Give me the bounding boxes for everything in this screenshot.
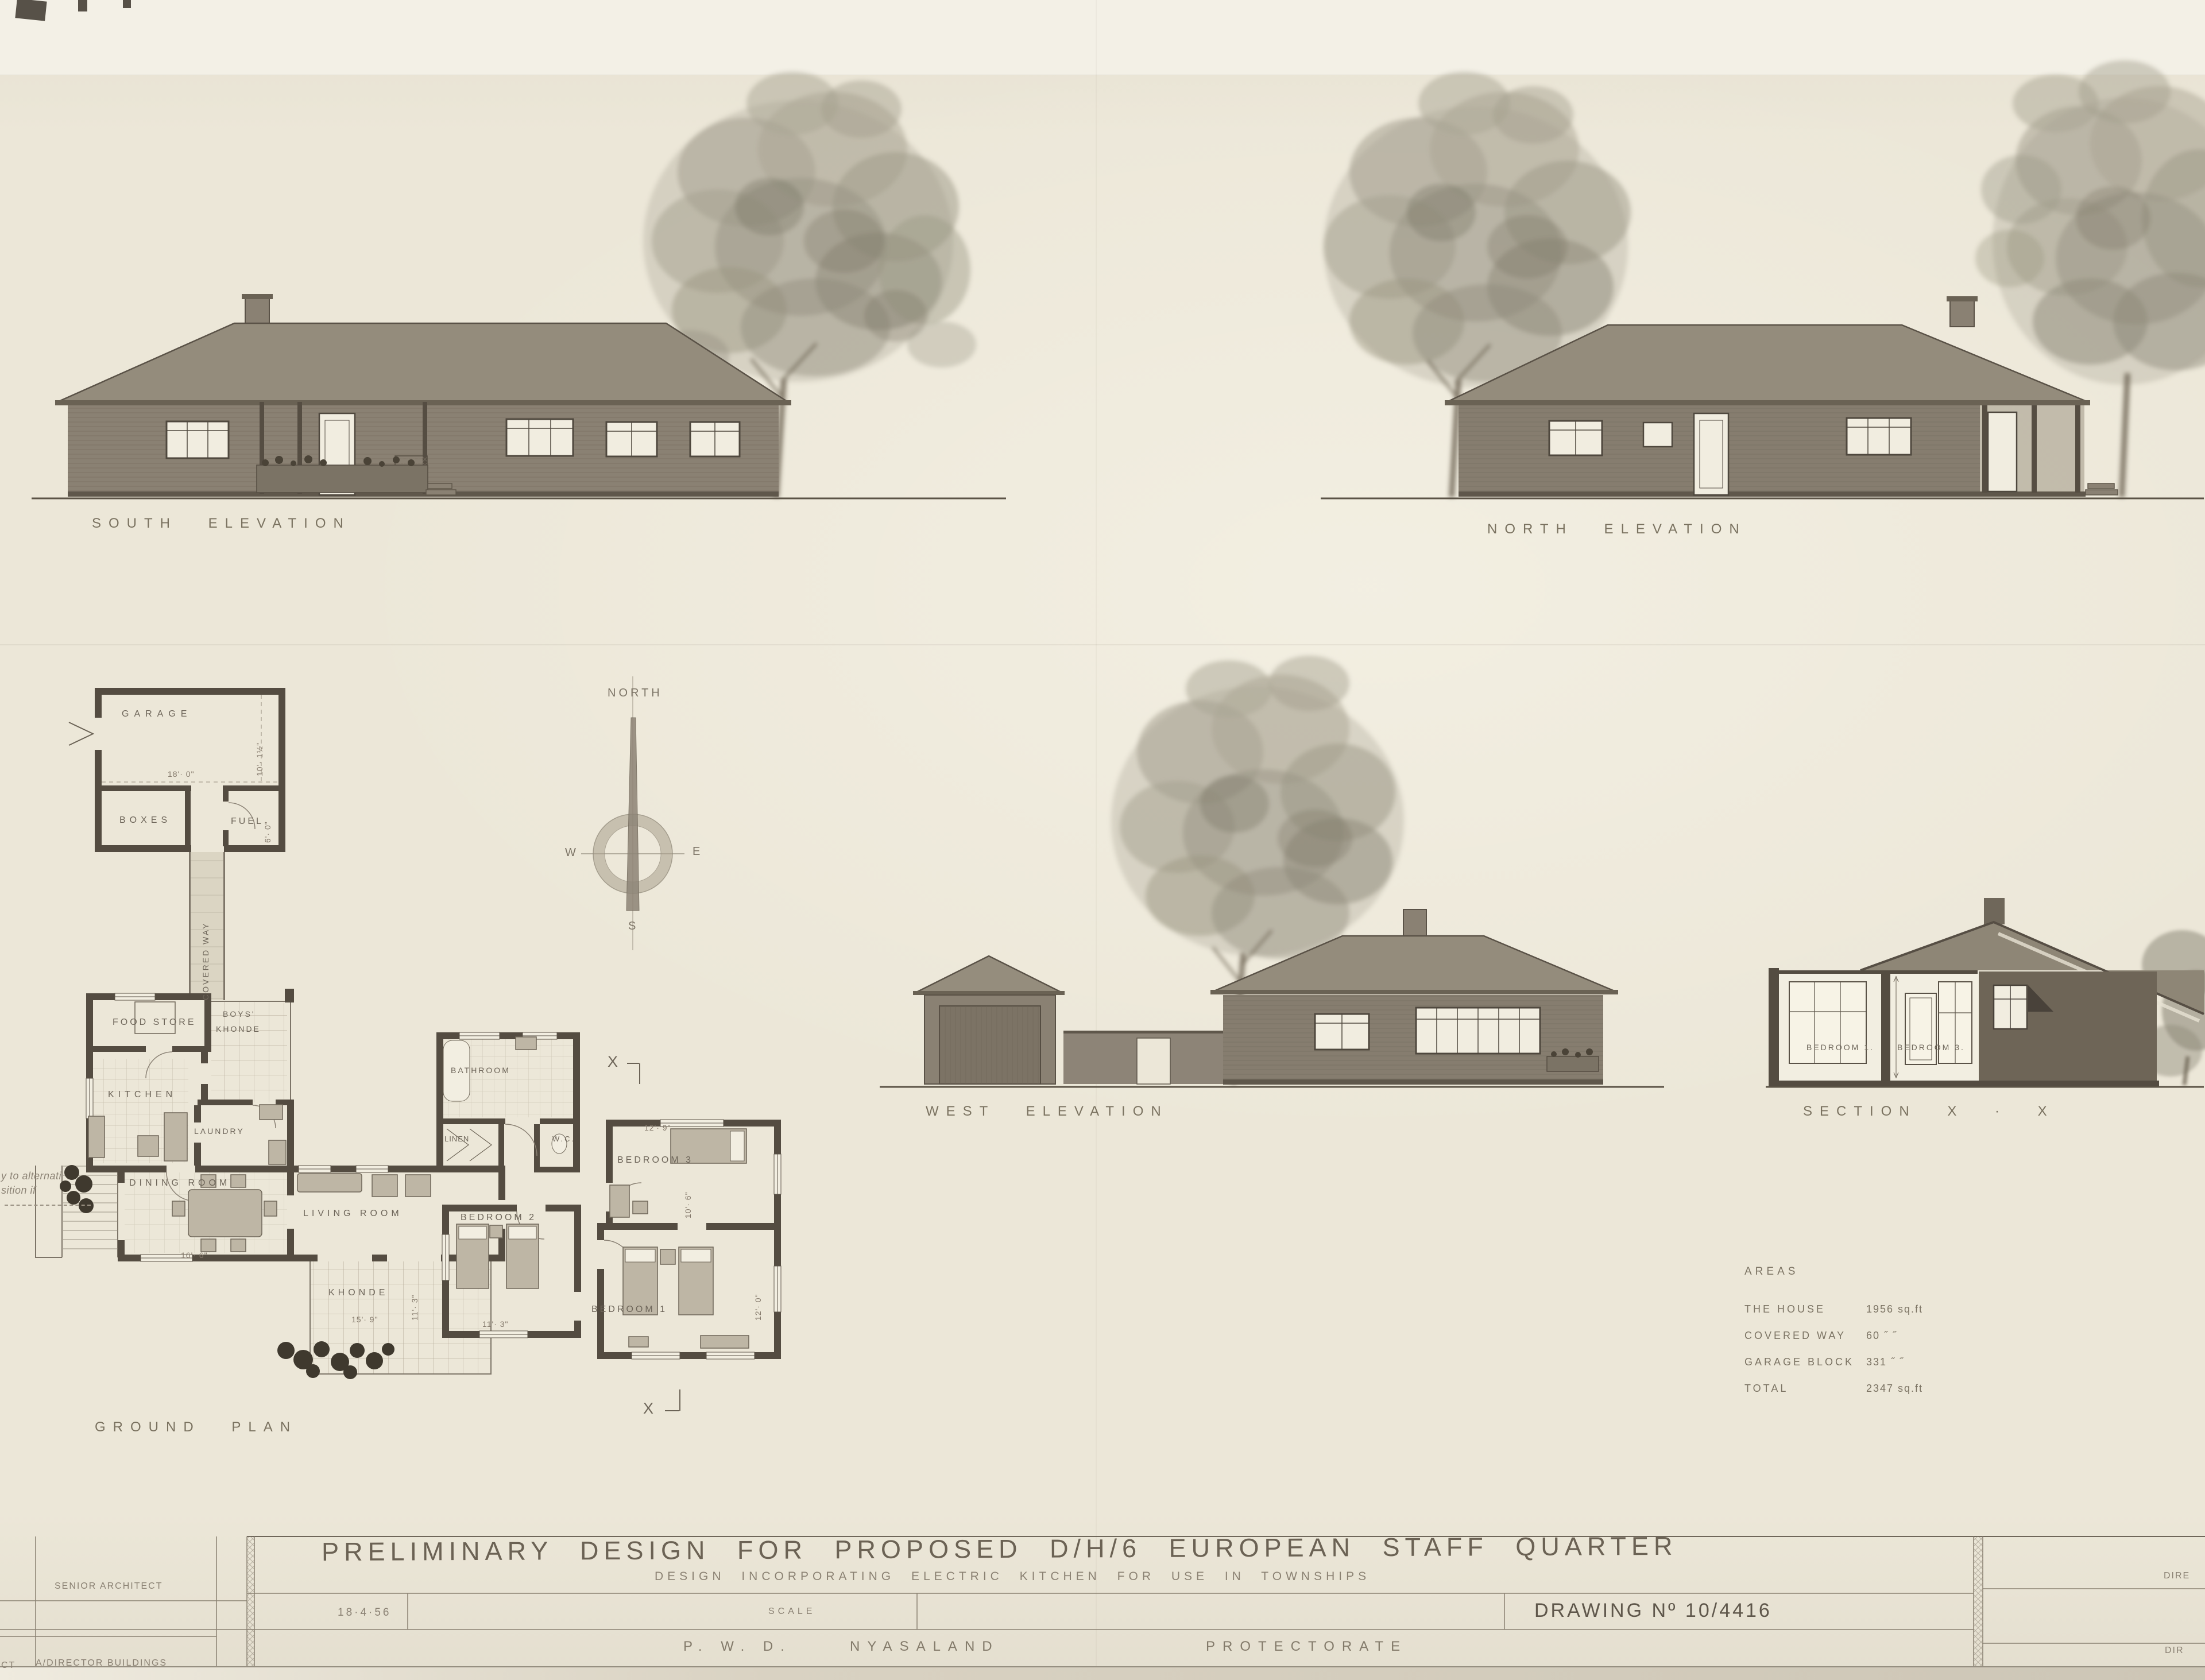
- margin-note: y to alternati sition if: [1, 1169, 61, 1198]
- compass-east-label: E: [693, 845, 703, 858]
- section-marker-bottom: X: [643, 1400, 653, 1418]
- room-living: LIVING ROOM: [303, 1209, 403, 1219]
- compass-west-label: W: [565, 846, 579, 860]
- section-bedroom1-label: BEDROOM 1.: [1806, 1043, 1874, 1052]
- room-covered-way: COVERED WAY: [201, 922, 210, 1000]
- section-marker-top: X: [608, 1053, 618, 1071]
- dim-fuel-depth: 6'· 0": [263, 821, 272, 843]
- title-block-org-territory: NYASALAND: [850, 1639, 1000, 1655]
- compass-rose: [581, 676, 684, 950]
- title-block-subtitle: DESIGN INCORPORATING ELECTRIC KITCHEN FO…: [655, 1570, 1370, 1584]
- drawing-sheet: SOUTH ELEVATION NORTH ELEVATION WEST ELE…: [0, 0, 2205, 1679]
- dim-bed3-depth: 10'· 6": [683, 1191, 693, 1218]
- areas-item: TOTAL: [1744, 1383, 1788, 1395]
- margin-note-dash: [5, 1205, 91, 1206]
- areas-value: 60 ˝ ˝: [1866, 1330, 1897, 1342]
- title-block-title: PRELIMINARY DESIGN FOR PROPOSED D/H/6 EU…: [322, 1531, 1678, 1567]
- room-food-store: FOOD STORE: [113, 1017, 196, 1028]
- room-boys-khonde-2: KHONDE: [216, 1024, 261, 1033]
- title-block-org-pwd: P. W. D.: [683, 1639, 792, 1655]
- areas-title: AREAS: [1744, 1265, 1963, 1278]
- room-fuel: FUEL: [231, 816, 264, 827]
- south-elevation-label: SOUTH ELEVATION: [92, 516, 351, 532]
- areas-row: TOTAL 2347 sq.ft: [1744, 1383, 1963, 1409]
- areas-row: GARAGE BLOCK 331 ˝ ˝: [1744, 1356, 1963, 1383]
- title-block-date: 18·4·56: [338, 1607, 392, 1619]
- dim-garage-width: 18'· 0": [168, 769, 195, 779]
- title-block-drawing-no: DRAWING Nº 10/4416: [1534, 1600, 1772, 1622]
- title-block-director-buildings: A/DIRECTOR BUILDINGS: [36, 1658, 167, 1669]
- room-boys-khonde-1: BOYS': [223, 1009, 256, 1019]
- dim-dining: 16'· 6": [181, 1251, 208, 1260]
- ground-plan-label: GROUND PLAN: [95, 1419, 297, 1435]
- dim-garage-depth: 10'· 1½": [255, 742, 264, 776]
- areas-value: 331 ˝ ˝: [1866, 1356, 1904, 1368]
- title-block-senior-architect: SENIOR ARCHITECT: [55, 1581, 163, 1592]
- dim-bed2-width: 11'· 3": [482, 1319, 509, 1329]
- margin-note-line2: sition if: [1, 1183, 61, 1198]
- areas-item: COVERED WAY: [1744, 1330, 1846, 1342]
- room-wc: W.C.: [552, 1135, 575, 1143]
- room-khonde: KHONDE: [328, 1288, 388, 1298]
- title-block-partial-right-bottom: DIR: [2165, 1646, 2184, 1656]
- dim-bed1-depth: 12'· 0": [753, 1294, 763, 1321]
- section-bedroom3-label: BEDROOM 3.: [1897, 1043, 1965, 1052]
- areas-row: THE HOUSE 1956 sq.ft: [1744, 1303, 1963, 1330]
- areas-value: 2347 sq.ft: [1866, 1383, 1923, 1395]
- room-bedroom3: BEDROOM 3: [617, 1155, 693, 1166]
- dim-bed3-width: 12'· 9": [644, 1123, 671, 1132]
- dim-khonde-width: 15'· 9": [351, 1315, 378, 1324]
- ground-plan-drawing: [36, 688, 781, 1411]
- room-bedroom1: BEDROOM 1: [591, 1304, 667, 1315]
- compass-north-label: NORTH: [608, 687, 663, 700]
- room-bedroom2: BEDROOM 2: [461, 1213, 536, 1223]
- section-drawing: [1769, 898, 2204, 1086]
- section-xx-label: SECTION X · X: [1803, 1104, 2055, 1120]
- room-laundry: LAUNDRY: [194, 1127, 245, 1136]
- room-linen: LINEN: [444, 1135, 469, 1143]
- north-elevation-label: NORTH ELEVATION: [1487, 521, 1747, 537]
- margin-note-line1: y to alternati: [1, 1169, 61, 1183]
- room-garage: GARAGE: [122, 709, 192, 719]
- areas-item: THE HOUSE: [1744, 1303, 1825, 1315]
- title-block-scale-label: SCALE: [768, 1607, 815, 1617]
- room-bathroom: BATHROOM: [451, 1066, 510, 1075]
- dim-khonde-depth: 11'· 3": [410, 1294, 419, 1321]
- areas-value: 1956 sq.ft: [1866, 1303, 1923, 1315]
- areas-item: GARAGE BLOCK: [1744, 1356, 1854, 1368]
- title-block-org-protectorate: PROTECTORATE: [1206, 1639, 1407, 1655]
- room-boxes: BOXES: [119, 815, 171, 826]
- title-block-partial-left: CT: [1, 1660, 16, 1671]
- room-kitchen: KITCHEN: [108, 1090, 176, 1100]
- areas-table: AREAS THE HOUSE 1956 sq.ft COVERED WAY 6…: [1744, 1265, 1963, 1409]
- linework-svg: [0, 0, 2205, 1679]
- compass-south-label: S: [628, 920, 639, 933]
- areas-row: COVERED WAY 60 ˝ ˝: [1744, 1330, 1963, 1356]
- west-elevation-label: WEST ELEVATION: [926, 1104, 1169, 1120]
- title-block-partial-right-top: DIRE: [2164, 1571, 2190, 1581]
- room-dining: DINING ROOM: [129, 1178, 230, 1189]
